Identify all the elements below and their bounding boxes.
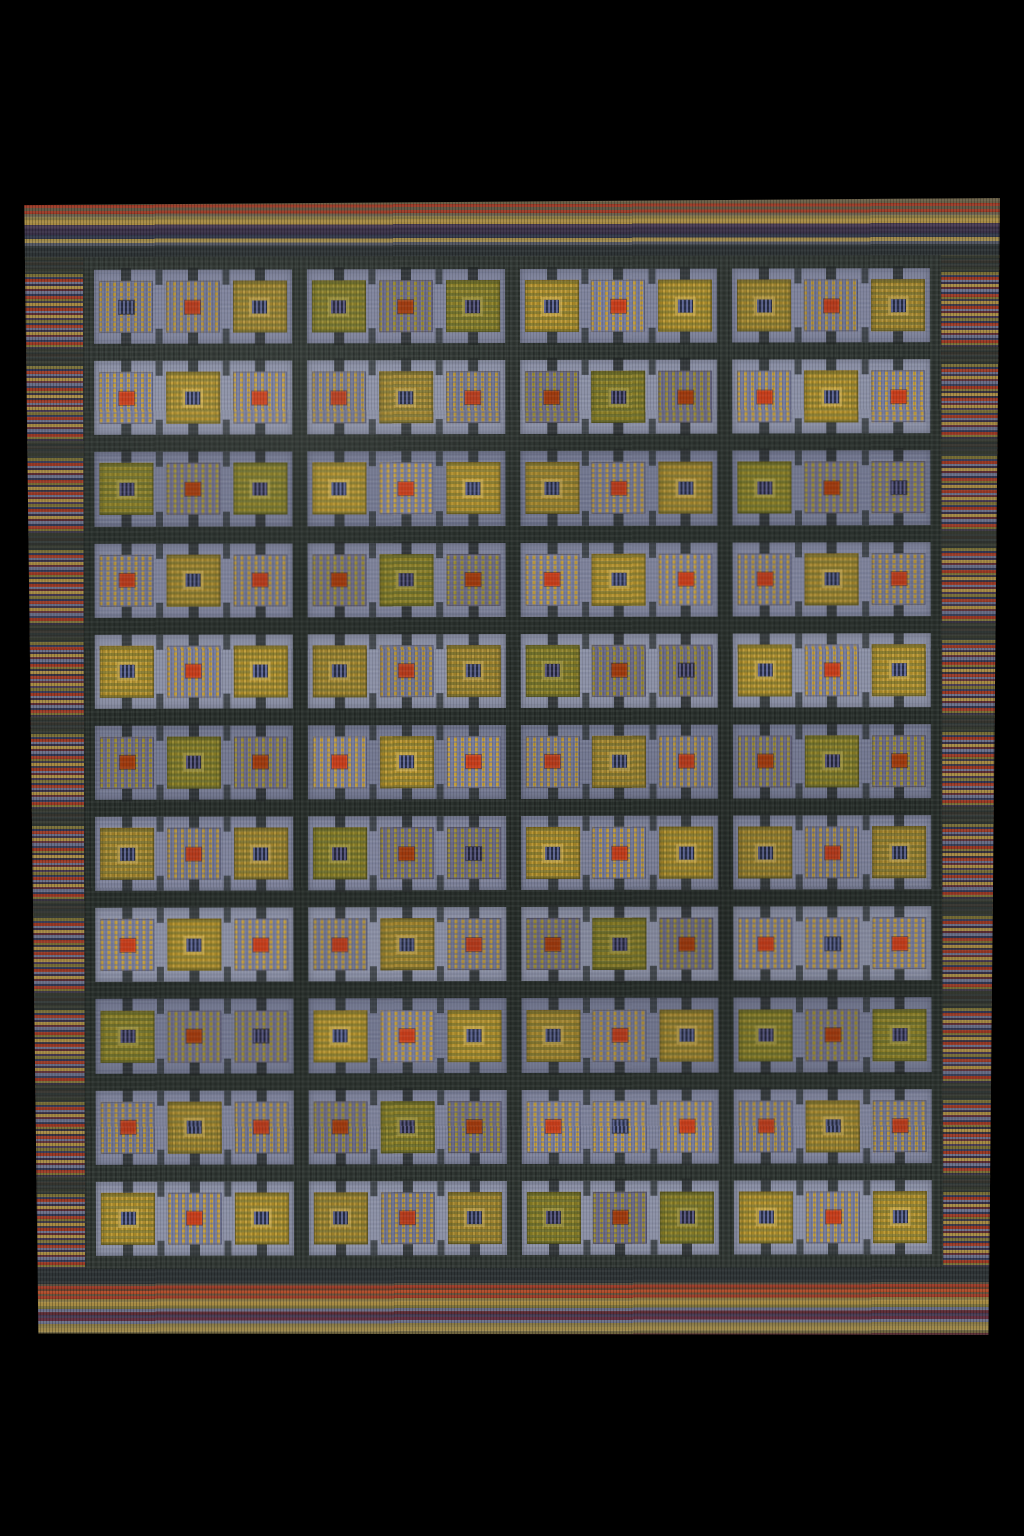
pattern-square <box>379 371 433 423</box>
indigo-grill-motif <box>546 1211 561 1224</box>
indigo-grill-motif <box>891 299 906 312</box>
indigo-grill-motif <box>824 390 839 403</box>
indigo-grill-motif <box>892 846 907 859</box>
red-center-dot <box>119 756 134 769</box>
pattern-square <box>166 554 220 606</box>
red-center-dot <box>467 1120 482 1133</box>
rug-border-top <box>23 198 1001 257</box>
red-center-dot <box>546 1120 561 1133</box>
square-separator <box>580 1089 593 1163</box>
pattern-square <box>101 1010 155 1062</box>
red-center-dot <box>120 1121 135 1134</box>
pattern-square <box>659 644 713 696</box>
pattern-square <box>526 1192 580 1244</box>
pattern-square <box>234 736 288 788</box>
square-separator <box>579 634 592 708</box>
red-center-dot <box>892 937 907 950</box>
pattern-square <box>871 279 925 331</box>
red-center-dot <box>187 1030 202 1043</box>
red-center-dot <box>826 1211 841 1224</box>
pattern-square <box>739 1009 793 1061</box>
red-center-dot <box>545 573 560 586</box>
square-separator <box>154 726 167 800</box>
indigo-grill-motif <box>120 1030 135 1043</box>
pattern-square <box>658 371 712 423</box>
red-center-dot <box>466 938 481 951</box>
pattern-square <box>592 827 646 879</box>
red-center-dot <box>185 300 200 313</box>
indigo-grill-motif <box>119 300 134 313</box>
rug-border-left <box>23 257 85 1269</box>
square-separator <box>154 634 167 708</box>
indigo-grill-motif <box>825 1120 840 1133</box>
square-separator <box>220 543 233 617</box>
indigo-grill-motif <box>613 1120 628 1133</box>
field-cell <box>95 817 293 892</box>
field-cell <box>95 543 293 618</box>
pattern-square <box>167 919 221 971</box>
square-separator <box>220 270 233 344</box>
pattern-square <box>166 281 220 333</box>
red-center-dot <box>333 938 348 951</box>
indigo-grill-motif <box>186 756 201 769</box>
pattern-square <box>805 735 859 787</box>
square-separator <box>859 724 872 798</box>
square-separator <box>154 999 167 1073</box>
square-separator <box>646 816 659 890</box>
indigo-grill-motif <box>120 1212 135 1225</box>
pattern-square <box>737 279 791 331</box>
square-separator <box>859 633 872 707</box>
red-center-dot <box>119 574 134 587</box>
red-center-dot <box>187 1212 202 1225</box>
pattern-square <box>872 644 926 696</box>
red-center-dot <box>399 847 414 860</box>
pattern-square <box>739 1191 793 1243</box>
pattern-square <box>312 645 366 697</box>
pattern-square <box>446 462 500 514</box>
pattern-square <box>592 645 646 697</box>
indigo-grill-motif <box>892 1028 907 1041</box>
pattern-square <box>380 736 434 788</box>
square-separator <box>433 543 446 617</box>
pattern-square <box>525 645 579 697</box>
indigo-grill-motif <box>757 481 772 494</box>
red-center-dot <box>332 756 347 769</box>
pattern-square <box>101 1193 155 1245</box>
field-cell <box>95 999 293 1074</box>
red-center-dot <box>758 755 773 768</box>
indigo-grill-motif <box>545 847 560 860</box>
pattern-square <box>447 918 501 970</box>
red-center-dot <box>891 755 906 768</box>
pattern-square <box>659 736 713 788</box>
red-center-dot <box>611 299 626 312</box>
indigo-grill-motif <box>679 664 694 677</box>
red-center-dot <box>612 664 627 677</box>
square-separator <box>578 269 591 343</box>
square-separator <box>222 1090 235 1164</box>
pattern-square <box>737 371 791 423</box>
pattern-square <box>312 554 366 606</box>
field-cell <box>95 725 293 800</box>
square-separator <box>153 361 166 435</box>
indigo-grill-motif <box>333 1029 348 1042</box>
photo-canvas: { "meta": { "description": "Photograph o… <box>0 0 1024 1536</box>
field-cell <box>307 360 505 435</box>
indigo-grill-motif <box>758 1028 773 1041</box>
red-center-dot <box>466 756 481 769</box>
indigo-grill-motif <box>120 847 135 860</box>
square-separator <box>434 816 447 890</box>
pattern-square <box>591 280 645 332</box>
square-separator <box>434 1181 447 1255</box>
field-cell <box>308 1090 506 1165</box>
pattern-square <box>659 462 713 514</box>
indigo-grill-motif <box>119 483 134 496</box>
pattern-square <box>804 279 858 331</box>
indigo-grill-motif <box>253 482 268 495</box>
indigo-grill-motif <box>398 391 413 404</box>
pattern-square <box>872 735 926 787</box>
square-separator <box>366 452 379 526</box>
field-cell <box>96 1181 294 1256</box>
field-cell <box>521 1089 719 1164</box>
pattern-square <box>592 371 646 423</box>
field-cell <box>309 1181 507 1256</box>
pattern-square <box>873 1191 927 1243</box>
pattern-square <box>739 918 793 970</box>
square-separator <box>860 1180 873 1254</box>
square-separator <box>792 451 805 525</box>
indigo-grill-motif <box>611 391 626 404</box>
indigo-grill-motif <box>466 847 481 860</box>
indigo-grill-motif <box>399 756 414 769</box>
field-cell <box>734 1089 932 1164</box>
pattern-square <box>525 553 579 605</box>
pattern-square <box>447 1101 501 1153</box>
indigo-grill-motif <box>254 1212 269 1225</box>
red-center-dot <box>400 1029 415 1042</box>
field-cell <box>520 542 718 617</box>
square-separator <box>221 999 234 1073</box>
red-center-dot <box>757 390 772 403</box>
pattern-square <box>806 1100 860 1152</box>
square-separator <box>647 998 660 1072</box>
pattern-square <box>526 1009 580 1061</box>
red-center-dot <box>613 1211 628 1224</box>
red-center-dot <box>331 391 346 404</box>
indigo-grill-motif <box>254 1030 269 1043</box>
square-separator <box>434 907 447 981</box>
pattern-square <box>524 280 578 332</box>
field-cell <box>521 907 719 982</box>
red-center-dot <box>892 1119 907 1132</box>
field-cell <box>519 269 717 344</box>
red-center-dot <box>333 1121 348 1134</box>
pattern-square <box>805 826 859 878</box>
pattern-square <box>739 1100 793 1152</box>
pattern-square <box>99 372 153 424</box>
field-cell <box>307 269 505 344</box>
square-separator <box>434 1090 447 1164</box>
field-cell <box>521 1180 719 1255</box>
pattern-square <box>233 372 287 424</box>
field-cell <box>733 724 931 799</box>
pattern-square <box>525 736 579 788</box>
pattern-square <box>873 1009 927 1061</box>
field-cell <box>95 634 293 709</box>
pattern-square <box>593 918 647 970</box>
pattern-square <box>235 1192 289 1244</box>
pattern-square <box>167 645 221 697</box>
pattern-square <box>166 372 220 424</box>
pattern-square <box>804 371 858 423</box>
indigo-grill-motif <box>891 663 906 676</box>
square-separator <box>367 816 380 890</box>
square-separator <box>580 1181 593 1255</box>
pattern-square <box>380 1010 434 1062</box>
pattern-square <box>593 1100 647 1152</box>
indigo-grill-motif <box>825 937 840 950</box>
indigo-grill-motif <box>545 664 560 677</box>
field-cell <box>520 724 718 799</box>
square-separator <box>367 908 380 982</box>
indigo-grill-motif <box>119 665 134 678</box>
pattern-square <box>99 281 153 333</box>
pattern-square <box>526 918 580 970</box>
indigo-grill-motif <box>400 1120 415 1133</box>
square-separator <box>368 1181 381 1255</box>
field-cell <box>733 815 931 890</box>
pattern-square <box>167 1010 221 1062</box>
pattern-square <box>168 1101 222 1153</box>
pattern-square <box>738 553 792 605</box>
pattern-square <box>738 462 792 514</box>
pattern-square <box>313 827 367 879</box>
square-separator <box>434 725 447 799</box>
pattern-square <box>168 1193 222 1245</box>
indigo-grill-motif <box>186 391 201 404</box>
field-cell <box>307 634 505 709</box>
field-cell <box>95 908 293 983</box>
pattern-square <box>446 736 500 788</box>
indigo-grill-motif <box>544 299 559 312</box>
red-center-dot <box>824 299 839 312</box>
square-separator <box>579 725 592 799</box>
red-center-dot <box>252 391 267 404</box>
square-separator <box>366 360 379 434</box>
pattern-square <box>446 645 500 697</box>
square-separator <box>858 268 871 342</box>
pattern-square <box>806 1191 860 1243</box>
field-cell <box>734 1180 932 1255</box>
indigo-grill-motif <box>331 300 346 313</box>
square-separator <box>646 725 659 799</box>
pattern-square <box>447 1010 501 1062</box>
pattern-square <box>313 1101 367 1153</box>
pattern-square <box>99 463 153 515</box>
pattern-square <box>658 280 712 332</box>
square-separator <box>646 360 659 434</box>
pattern-square <box>167 828 221 880</box>
pattern-square <box>805 644 859 696</box>
square-separator <box>433 360 446 434</box>
red-center-dot <box>679 755 694 768</box>
pattern-square <box>379 554 433 606</box>
indigo-grill-motif <box>678 482 693 495</box>
pattern-square <box>660 1191 714 1243</box>
pattern-square <box>447 1192 501 1244</box>
pattern-square <box>100 919 154 971</box>
red-center-dot <box>186 483 201 496</box>
field-cell <box>733 542 931 617</box>
square-separator <box>645 269 658 343</box>
indigo-grill-motif <box>611 573 626 586</box>
indigo-grill-motif <box>252 300 267 313</box>
red-center-dot <box>398 300 413 313</box>
pattern-square <box>380 827 434 879</box>
pattern-square <box>100 737 154 789</box>
red-center-dot <box>545 755 560 768</box>
pattern-square <box>660 918 714 970</box>
indigo-grill-motif <box>891 481 906 494</box>
red-center-dot <box>465 391 480 404</box>
kilim-rug <box>23 198 1003 1338</box>
square-separator <box>434 999 447 1073</box>
pattern-square <box>447 827 501 879</box>
pattern-square <box>660 1009 714 1061</box>
pattern-square <box>233 645 287 697</box>
red-center-dot <box>678 573 693 586</box>
pattern-square <box>592 736 646 788</box>
red-center-dot <box>120 939 135 952</box>
red-center-dot <box>187 847 202 860</box>
square-separator <box>367 999 380 1073</box>
indigo-grill-motif <box>467 1211 482 1224</box>
square-separator <box>647 907 660 981</box>
pattern-square <box>525 462 579 514</box>
field-cell <box>96 1090 294 1165</box>
square-separator <box>153 452 166 526</box>
pattern-square <box>380 919 434 971</box>
pattern-square <box>660 1100 714 1152</box>
pattern-square <box>313 1010 367 1062</box>
pattern-square <box>593 1192 647 1244</box>
pattern-square <box>167 737 221 789</box>
square-separator <box>793 907 806 981</box>
rug-middle <box>23 255 1003 1269</box>
pattern-square <box>166 463 220 515</box>
square-separator <box>793 1089 806 1163</box>
indigo-grill-motif <box>892 1211 907 1224</box>
pattern-square <box>738 827 792 879</box>
pattern-square <box>312 463 366 515</box>
indigo-grill-motif <box>399 573 414 586</box>
square-separator <box>153 270 166 344</box>
square-separator <box>221 908 234 982</box>
red-center-dot <box>891 572 906 585</box>
pattern-square <box>872 826 926 878</box>
pattern-square <box>446 554 500 606</box>
indigo-grill-motif <box>399 938 414 951</box>
pattern-square <box>659 827 713 879</box>
indigo-grill-motif <box>465 482 480 495</box>
square-separator <box>154 543 167 617</box>
rug-border-bottom <box>25 1267 1003 1338</box>
field-cell <box>94 361 292 436</box>
red-center-dot <box>612 1029 627 1042</box>
square-separator <box>859 815 872 889</box>
square-separator <box>860 1089 873 1163</box>
pattern-square <box>380 1101 434 1153</box>
square-separator <box>792 633 805 707</box>
field-cell <box>307 543 505 618</box>
indigo-grill-motif <box>758 846 773 859</box>
pattern-square <box>446 371 500 423</box>
pattern-square <box>872 553 926 605</box>
pattern-square <box>233 554 287 606</box>
red-center-dot <box>758 1120 773 1133</box>
field-cell <box>521 998 719 1073</box>
pattern-square <box>234 828 288 880</box>
field-cell <box>307 451 505 526</box>
indigo-grill-motif <box>333 1212 348 1225</box>
square-separator <box>646 451 659 525</box>
pattern-square <box>101 1101 155 1153</box>
red-center-dot <box>254 1121 269 1134</box>
red-center-dot <box>825 1028 840 1041</box>
square-separator <box>433 269 446 343</box>
red-center-dot <box>466 573 481 586</box>
pattern-square <box>659 553 713 605</box>
square-separator <box>367 1090 380 1164</box>
pattern-square <box>100 646 154 698</box>
red-center-dot <box>253 756 268 769</box>
pattern-square <box>805 553 859 605</box>
indigo-grill-motif <box>187 939 202 952</box>
field-cell <box>94 269 292 344</box>
square-separator <box>366 269 379 343</box>
indigo-grill-motif <box>759 1211 774 1224</box>
pattern-square <box>379 280 433 332</box>
pattern-square <box>234 1010 288 1062</box>
red-center-dot <box>399 665 414 678</box>
indigo-grill-motif <box>544 482 559 495</box>
indigo-grill-motif <box>466 664 481 677</box>
field-cell <box>733 633 931 708</box>
pattern-square <box>100 554 154 606</box>
red-center-dot <box>254 938 269 951</box>
square-separator <box>793 1180 806 1254</box>
indigo-grill-motif <box>332 665 347 678</box>
field-cell <box>520 360 718 435</box>
field-cell <box>732 359 930 434</box>
square-separator <box>221 634 234 708</box>
square-separator <box>220 452 233 526</box>
square-separator <box>647 1181 660 1255</box>
square-separator <box>792 542 805 616</box>
field-cell <box>732 268 930 343</box>
square-separator <box>433 451 446 525</box>
red-center-dot <box>186 665 201 678</box>
field-cell <box>308 816 506 891</box>
rug-border-right <box>941 255 1003 1267</box>
square-separator <box>155 1182 168 1256</box>
red-center-dot <box>678 390 693 403</box>
indigo-grill-motif <box>332 482 347 495</box>
indigo-grill-motif <box>465 300 480 313</box>
